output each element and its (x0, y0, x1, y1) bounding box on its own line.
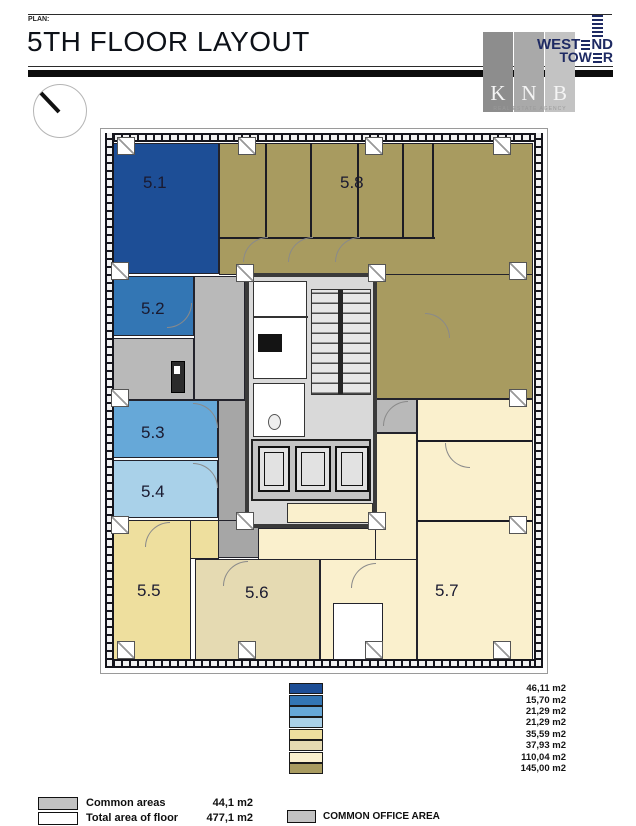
building-core (245, 273, 377, 528)
legend-row: 37,93 m2 (289, 740, 566, 751)
header-top-rule (28, 14, 612, 15)
column-icon (111, 516, 129, 534)
elevator-car (295, 446, 331, 492)
elevator-car (258, 446, 290, 492)
room-5-8 (375, 274, 533, 399)
room-5-7 (258, 528, 377, 560)
column-icon (236, 264, 254, 282)
legend-area-value: 15,70 m2 (526, 695, 566, 706)
elevator-cab (301, 452, 325, 486)
legend-row: 35,59 m2 (289, 729, 566, 740)
knb-letter: N (514, 81, 544, 106)
total-area-value: 477,1 m2 (155, 812, 253, 824)
column-icon (365, 641, 383, 659)
legend-swatch-5-6 (289, 740, 323, 751)
legend-area-value: 21,29 m2 (526, 706, 566, 717)
column-icon (111, 262, 129, 280)
knb-logo-square: K (483, 32, 513, 112)
brand-text: R (603, 49, 613, 65)
column-icon (117, 641, 135, 659)
room-label-5-6: 5.6 (245, 583, 269, 603)
elevator-cab (341, 452, 363, 486)
room-label-5-2: 5.2 (141, 299, 165, 319)
legend-swatch-5-2 (289, 695, 323, 706)
knb-letter: B (545, 81, 575, 106)
common-areas-value: 44,1 m2 (155, 797, 253, 809)
column-icon (111, 389, 129, 407)
column-icon (238, 137, 256, 155)
legend-row: 46,11 m2 (289, 683, 566, 694)
partition-wall (402, 143, 404, 237)
column-icon (368, 264, 386, 282)
north-arrow-icon (33, 84, 87, 138)
legend-row: 145,00 m2 (289, 763, 566, 774)
elevator-bank (251, 439, 371, 501)
brand-text: TOW (559, 49, 591, 65)
wc-room (253, 383, 305, 437)
shaft (258, 334, 282, 352)
area-legend: 46,11 m2 15,70 m2 21,29 m2 21,29 m2 35,5… (289, 683, 566, 774)
room-label-5-7: 5.7 (435, 581, 459, 601)
stylized-e-icon (593, 53, 602, 63)
column-icon (236, 512, 254, 530)
legend-area-value: 110,04 m2 (521, 752, 566, 763)
legend-swatch-5-3 (289, 706, 323, 717)
elevator-cab (264, 452, 284, 486)
core-storage (287, 503, 373, 523)
legend-area-value: 46,11 m2 (526, 683, 566, 694)
legend-row: 110,04 m2 (289, 751, 566, 762)
room-label-5-3: 5.3 (141, 423, 165, 443)
room-5-5 (190, 520, 219, 559)
room-label-5-5: 5.5 (137, 581, 161, 601)
legend-area-value: 35,59 m2 (526, 729, 566, 740)
brand-line-2: TOWR (559, 50, 613, 64)
column-icon (368, 512, 386, 530)
plan-label: PLAN: (28, 16, 49, 23)
legend-row: 21,29 m2 (289, 717, 566, 728)
column-icon (493, 641, 511, 659)
agency-tagline: REAL ESTATE AGENCY (478, 106, 582, 112)
common-office-swatch (287, 810, 316, 823)
common-areas-swatch (38, 797, 78, 810)
legend-area-value: 37,93 m2 (526, 740, 566, 751)
exterior-wall-east (534, 133, 543, 668)
floor-plan: 5.1 5.8 5.2 5.3 5.4 5.5 5.6 5.7 (105, 133, 545, 673)
staircase (311, 289, 371, 395)
column-icon (493, 137, 511, 155)
shaft-room (253, 281, 307, 379)
legend-row: 15,70 m2 (289, 694, 566, 705)
legend-swatch-5-4 (289, 717, 323, 728)
room-5-6 (195, 559, 320, 660)
corridor (218, 400, 248, 522)
exterior-wall-south (105, 659, 543, 668)
partition-wall (432, 143, 434, 237)
page-title: 5TH FLOOR LAYOUT (27, 26, 310, 58)
common-area (194, 276, 245, 400)
toilet-icon (268, 414, 281, 430)
partition-wall (265, 143, 267, 237)
legend-swatch-5-5 (289, 729, 323, 740)
total-area-swatch (38, 812, 78, 825)
kitchenette-icon (171, 361, 185, 393)
room-label-5-1: 5.1 (143, 173, 167, 193)
room-label-5-8: 5.8 (340, 173, 364, 193)
room-5-1 (113, 143, 219, 274)
common-areas-label: Common areas (86, 797, 165, 809)
knb-letter: K (483, 81, 513, 106)
partition-wall (254, 316, 308, 318)
legend-swatch-5-1 (289, 683, 323, 694)
column-icon (509, 516, 527, 534)
column-icon (509, 389, 527, 407)
partition-wall (219, 237, 435, 239)
common-office-label: COMMON OFFICE AREA (323, 811, 440, 822)
legend-area-value: 145,00 m2 (521, 763, 566, 774)
column-icon (117, 137, 135, 155)
legend-area-value: 21,29 m2 (526, 717, 566, 728)
column-icon (365, 137, 383, 155)
partition-wall (310, 143, 312, 237)
partition-wall (417, 440, 533, 442)
partition-wall (357, 143, 359, 237)
exterior-wall-north (105, 133, 543, 142)
elevator-car (335, 446, 369, 492)
room-label-5-4: 5.4 (141, 482, 165, 502)
legend-swatch-5-7 (289, 752, 323, 763)
column-icon (509, 262, 527, 280)
legend-swatch-5-8 (289, 763, 323, 774)
legend-row: 21,29 m2 (289, 706, 566, 717)
column-icon (238, 641, 256, 659)
tower-bars-icon (592, 13, 603, 37)
